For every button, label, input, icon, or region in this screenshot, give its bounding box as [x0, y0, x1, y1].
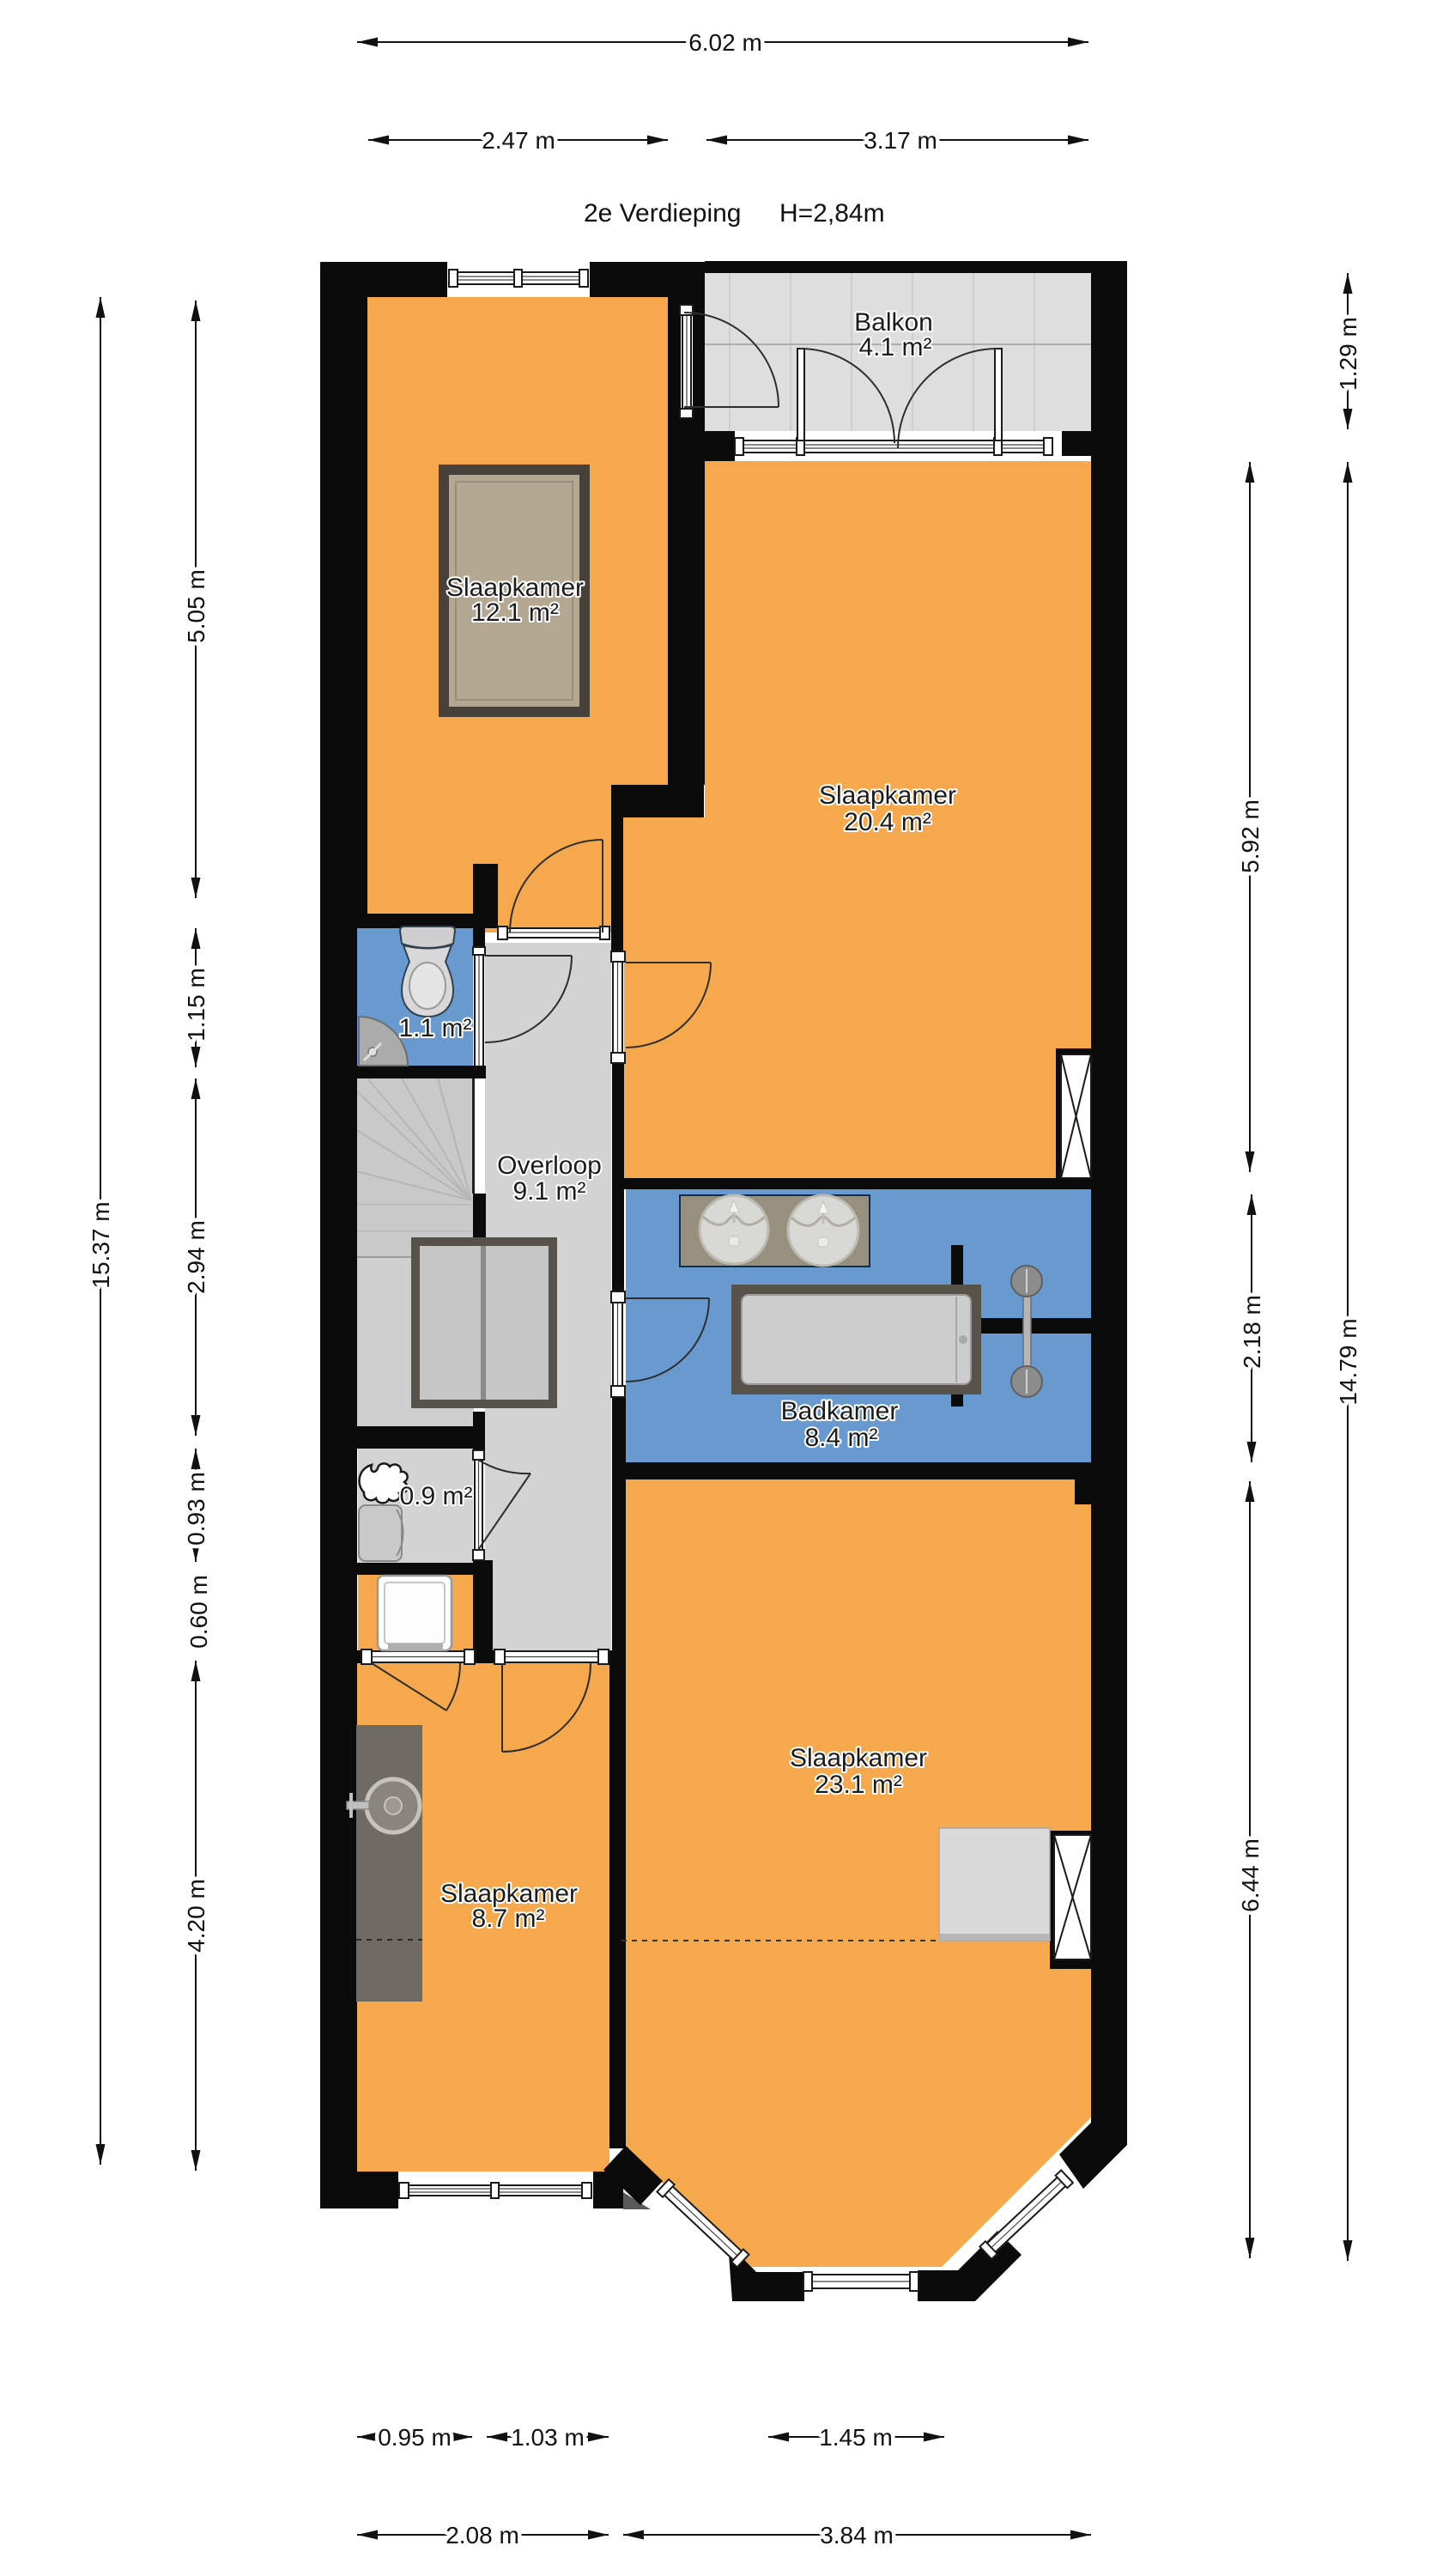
- svg-text:0.95 m: 0.95 m: [378, 2424, 452, 2451]
- svg-text:6.44 m: 6.44 m: [1237, 1838, 1264, 1912]
- svg-text:0.60 m: 0.60 m: [185, 1575, 212, 1649]
- svg-text:2.94 m: 2.94 m: [183, 1220, 209, 1294]
- svg-text:20.4 m²: 20.4 m²: [844, 808, 931, 836]
- svg-text:15.37 m: 15.37 m: [88, 1201, 114, 1288]
- svg-text:23.1 m²: 23.1 m²: [815, 1771, 902, 1799]
- svg-text:8.7 m²: 8.7 m²: [471, 1905, 544, 1933]
- svg-text:0.9 m²: 0.9 m²: [399, 1482, 472, 1510]
- svg-text:0.93 m: 0.93 m: [183, 1472, 209, 1546]
- svg-text:4.20 m: 4.20 m: [183, 1879, 209, 1953]
- svg-text:5.92 m: 5.92 m: [1237, 799, 1264, 873]
- svg-text:Slaapkamer: Slaapkamer: [819, 781, 956, 810]
- svg-text:6.02 m: 6.02 m: [688, 29, 762, 56]
- svg-text:H=2,84m: H=2,84m: [779, 199, 885, 228]
- svg-text:1.45 m: 1.45 m: [819, 2424, 893, 2451]
- svg-text:2e Verdieping: 2e Verdieping: [584, 199, 742, 228]
- svg-text:1.15 m: 1.15 m: [183, 968, 209, 1042]
- svg-text:2.18 m: 2.18 m: [1239, 1295, 1265, 1369]
- svg-text:1.03 m: 1.03 m: [511, 2424, 585, 2451]
- svg-text:2.47 m: 2.47 m: [482, 127, 555, 154]
- svg-text:3.84 m: 3.84 m: [820, 2522, 894, 2549]
- svg-text:12.1 m²: 12.1 m²: [471, 598, 559, 627]
- svg-text:9.1 m²: 9.1 m²: [512, 1177, 585, 1206]
- svg-text:2.08 m: 2.08 m: [446, 2522, 519, 2549]
- svg-text:4.1 m²: 4.1 m²: [858, 333, 931, 361]
- svg-text:3.17 m: 3.17 m: [864, 127, 937, 154]
- svg-text:Overloop: Overloop: [497, 1151, 602, 1180]
- svg-text:1.1 m²: 1.1 m²: [398, 1014, 471, 1042]
- svg-text:5.05 m: 5.05 m: [183, 569, 209, 643]
- svg-text:Badkamer: Badkamer: [781, 1397, 899, 1425]
- svg-text:8.4 m²: 8.4 m²: [804, 1424, 877, 1452]
- svg-text:14.79 m: 14.79 m: [1335, 1318, 1361, 1405]
- svg-text:1.29 m: 1.29 m: [1335, 317, 1361, 391]
- svg-text:Slaapkamer: Slaapkamer: [790, 1744, 927, 1772]
